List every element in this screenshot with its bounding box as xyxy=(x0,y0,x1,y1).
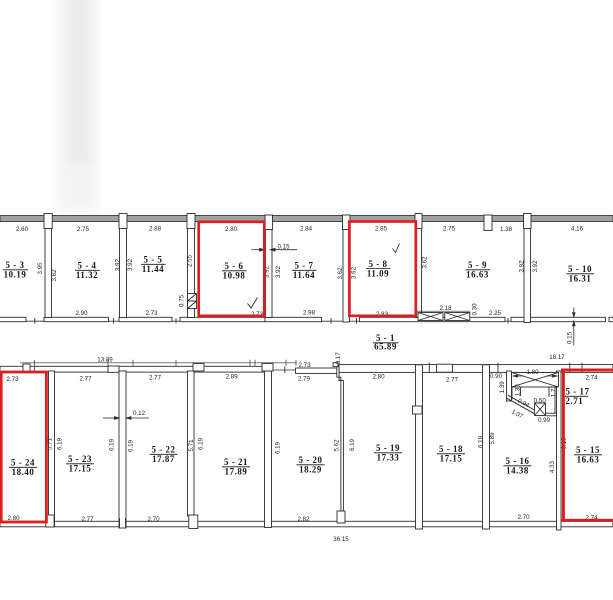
svg-text:5 - 3: 5 - 3 xyxy=(5,260,24,270)
svg-text:2.55: 2.55 xyxy=(187,254,194,267)
svg-text:14.38: 14.38 xyxy=(506,466,529,476)
svg-text:16.31: 16.31 xyxy=(569,274,592,284)
svg-text:2.70: 2.70 xyxy=(147,516,160,523)
svg-text:2.75: 2.75 xyxy=(77,226,90,233)
svg-text:6.19: 6.19 xyxy=(197,437,204,450)
svg-text:3.62: 3.62 xyxy=(51,269,58,282)
svg-text:0.15: 0.15 xyxy=(567,331,574,344)
svg-text:2.77: 2.77 xyxy=(79,376,92,383)
svg-text:1.38: 1.38 xyxy=(500,226,513,233)
svg-text:5.71: 5.71 xyxy=(188,439,195,452)
svg-text:4.16: 4.16 xyxy=(571,226,584,233)
svg-text:2.77: 2.77 xyxy=(446,377,459,384)
svg-text:6.19: 6.19 xyxy=(127,439,134,452)
svg-text:6.19: 6.19 xyxy=(108,438,115,451)
svg-text:2.90: 2.90 xyxy=(75,310,88,317)
svg-text:3.92: 3.92 xyxy=(275,265,282,278)
svg-text:5 - 4: 5 - 4 xyxy=(77,261,96,271)
svg-text:5 - 20: 5 - 20 xyxy=(298,455,322,465)
svg-text:5 - 22: 5 - 22 xyxy=(151,445,175,455)
svg-text:5.89: 5.89 xyxy=(489,432,496,445)
svg-text:1.80: 1.80 xyxy=(526,369,539,376)
svg-text:5.62: 5.62 xyxy=(333,439,340,452)
svg-text:2.88: 2.88 xyxy=(149,226,162,233)
svg-text:5 - 8: 5 - 8 xyxy=(368,259,387,269)
svg-text:4.33: 4.33 xyxy=(549,460,556,473)
svg-text:10.19: 10.19 xyxy=(4,270,27,280)
svg-text:16.63: 16.63 xyxy=(577,455,600,465)
svg-text:3.62: 3.62 xyxy=(422,256,429,269)
svg-text:3.92: 3.92 xyxy=(127,258,134,271)
svg-text:6.19: 6.19 xyxy=(477,435,484,448)
svg-text:2.25: 2.25 xyxy=(489,310,502,317)
svg-text:2.75: 2.75 xyxy=(443,226,456,233)
svg-text:2.60: 2.60 xyxy=(16,226,29,233)
svg-text:11.44: 11.44 xyxy=(142,264,164,274)
svg-text:2.70: 2.70 xyxy=(517,514,530,521)
svg-text:2.98: 2.98 xyxy=(303,310,316,317)
svg-text:3.92: 3.92 xyxy=(519,260,526,273)
svg-text:0.75: 0.75 xyxy=(179,294,186,307)
svg-text:2.80: 2.80 xyxy=(225,226,238,233)
svg-text:2.77: 2.77 xyxy=(149,375,162,382)
svg-text:2.84: 2.84 xyxy=(300,226,313,233)
svg-text:3.92: 3.92 xyxy=(532,260,539,273)
svg-text:36.15: 36.15 xyxy=(333,536,349,543)
svg-text:2.74: 2.74 xyxy=(585,375,598,382)
svg-text:5 - 21: 5 - 21 xyxy=(224,457,248,467)
svg-text:1.30: 1.30 xyxy=(514,384,521,397)
svg-text:2.73: 2.73 xyxy=(298,362,311,369)
svg-text:11.32: 11.32 xyxy=(76,270,98,280)
svg-text:2.85: 2.85 xyxy=(375,226,388,233)
svg-text:5 - 19: 5 - 19 xyxy=(376,443,400,453)
svg-text:17.87: 17.87 xyxy=(152,454,175,464)
svg-text:5 - 24: 5 - 24 xyxy=(11,458,35,468)
svg-text:11.64: 11.64 xyxy=(293,270,315,280)
svg-text:0.90: 0.90 xyxy=(490,373,503,380)
svg-text:65.89: 65.89 xyxy=(374,341,397,351)
svg-text:2.89: 2.89 xyxy=(225,374,238,381)
svg-text:0.30: 0.30 xyxy=(471,303,478,316)
svg-text:0.50: 0.50 xyxy=(534,398,547,405)
svg-text:11.09: 11.09 xyxy=(367,268,389,278)
svg-text:6.19: 6.19 xyxy=(349,438,356,451)
svg-text:17.15: 17.15 xyxy=(69,464,92,474)
svg-text:2.82: 2.82 xyxy=(297,516,310,523)
svg-text:2.73: 2.73 xyxy=(6,376,19,383)
svg-text:5 - 18: 5 - 18 xyxy=(439,444,463,454)
svg-text:3.92: 3.92 xyxy=(115,258,122,271)
svg-text:2.71: 2.71 xyxy=(566,396,584,406)
svg-text:1.71: 1.71 xyxy=(551,385,558,398)
svg-text:18.17: 18.17 xyxy=(549,354,565,361)
svg-text:10.98: 10.98 xyxy=(223,271,246,281)
svg-text:5 - 16: 5 - 16 xyxy=(505,456,529,466)
svg-text:2.79: 2.79 xyxy=(298,376,311,383)
svg-text:1.39: 1.39 xyxy=(499,381,506,394)
svg-text:5 - 15: 5 - 15 xyxy=(576,445,600,455)
svg-text:2.73: 2.73 xyxy=(145,310,158,317)
svg-text:2.80: 2.80 xyxy=(372,374,385,381)
svg-text:5 - 9: 5 - 9 xyxy=(468,260,487,270)
svg-text:5 - 23: 5 - 23 xyxy=(68,454,92,464)
svg-text:3.62: 3.62 xyxy=(351,266,358,279)
svg-text:5 - 10: 5 - 10 xyxy=(568,264,592,274)
svg-text:18.29: 18.29 xyxy=(299,465,322,475)
svg-text:6.19: 6.19 xyxy=(56,437,63,450)
svg-text:5 - 6: 5 - 6 xyxy=(224,261,243,271)
svg-text:0.99: 0.99 xyxy=(538,417,551,424)
svg-text:3.95: 3.95 xyxy=(37,262,44,275)
svg-text:17.89: 17.89 xyxy=(225,467,248,477)
svg-text:18.40: 18.40 xyxy=(12,467,35,477)
svg-text:6.19: 6.19 xyxy=(274,441,281,454)
svg-text:0.12: 0.12 xyxy=(133,410,146,417)
svg-text:17.33: 17.33 xyxy=(377,453,400,463)
svg-text:2.77: 2.77 xyxy=(81,516,94,523)
svg-text:3.62: 3.62 xyxy=(337,267,344,280)
svg-text:16.63: 16.63 xyxy=(466,270,489,280)
svg-text:0.17: 0.17 xyxy=(335,352,342,365)
svg-text:17.15: 17.15 xyxy=(440,454,463,464)
svg-text:5 - 5: 5 - 5 xyxy=(143,255,162,265)
svg-text:5 - 7: 5 - 7 xyxy=(294,261,313,271)
